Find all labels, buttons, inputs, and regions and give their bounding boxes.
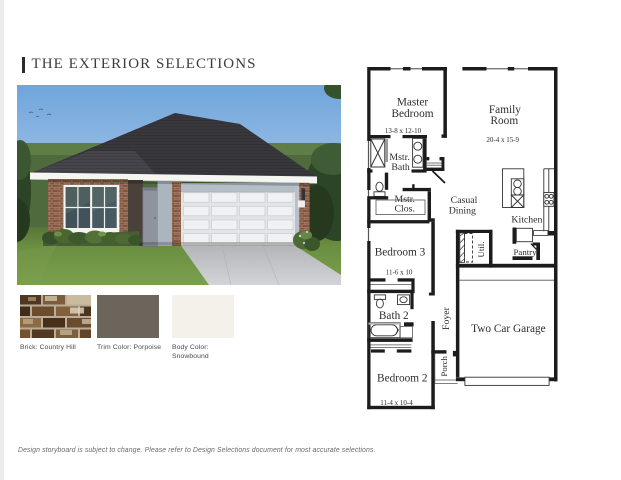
svg-text:20-4 x 15-9: 20-4 x 15-9 bbox=[486, 136, 519, 144]
svg-text:Clos.: Clos. bbox=[394, 204, 414, 215]
svg-text:Room: Room bbox=[490, 115, 518, 127]
svg-text:Family: Family bbox=[489, 104, 521, 116]
svg-text:Kitchen: Kitchen bbox=[511, 214, 542, 225]
svg-text:Dining: Dining bbox=[449, 205, 476, 216]
svg-text:13-8 x 12-10: 13-8 x 12-10 bbox=[385, 127, 422, 135]
svg-text:Two Car Garage: Two Car Garage bbox=[471, 323, 546, 335]
svg-text:Bath 2: Bath 2 bbox=[379, 310, 409, 322]
svg-text:11-6 x 10: 11-6 x 10 bbox=[386, 269, 413, 277]
svg-text:Pantry: Pantry bbox=[514, 247, 538, 257]
svg-text:Foyer: Foyer bbox=[441, 306, 452, 330]
svg-text:Bedroom: Bedroom bbox=[391, 108, 433, 120]
svg-text:Util.: Util. bbox=[476, 242, 486, 258]
svg-text:Bedroom 2: Bedroom 2 bbox=[377, 372, 428, 384]
svg-text:Bedroom 3: Bedroom 3 bbox=[375, 246, 426, 258]
svg-text:Bath: Bath bbox=[391, 162, 410, 173]
svg-text:Porch: Porch bbox=[439, 355, 449, 376]
svg-text:Master: Master bbox=[397, 97, 429, 109]
svg-text:11-4 x 10-4: 11-4 x 10-4 bbox=[380, 399, 413, 407]
